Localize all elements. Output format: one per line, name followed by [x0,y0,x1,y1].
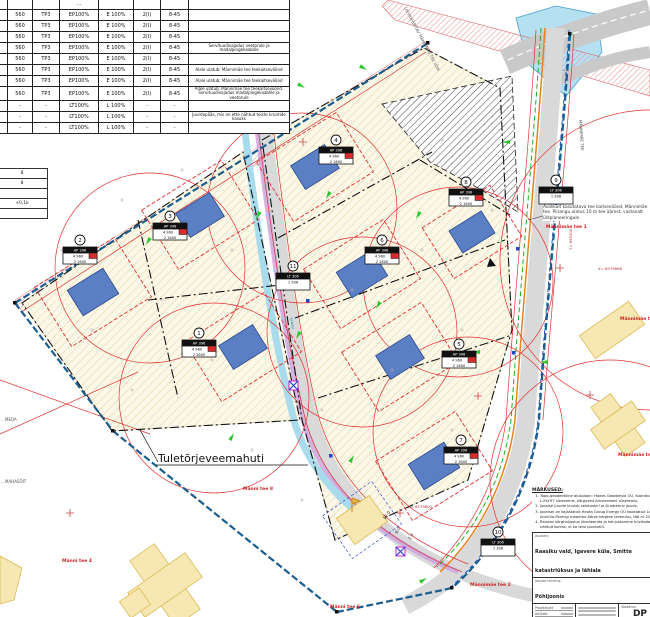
table-cell [189,101,290,112]
address-label-4: Männimäe tee 3 [620,316,650,322]
table-cell: E 100% [99,10,134,21]
legend-mini-table: 88+0,1k [0,168,48,219]
coord-x2: X= 6579600 [408,504,432,509]
table-cell: 560 [8,10,33,21]
table-cell: LT100% [60,101,99,112]
table-row: 560TP3EP100%E 100%2(I)8-45 [0,21,290,32]
table-cell: EP100% [60,32,99,43]
table-cell [189,21,290,32]
table-cell: EP100% [60,87,99,101]
title-block-roles: Projektijuht Arhitekt Koostaja [533,604,576,617]
coord-y1: Y= 659300 [568,228,573,250]
table-row: 560TP3EP100%E 100%2(I)8-45 [0,32,290,43]
table-cell: 2(I) [134,76,161,87]
svg-text:2 1600: 2 1600 [460,202,473,206]
note-item: Raiutav kõrghaljastus likvideerida ja ka… [540,520,650,529]
table-cell: 2(I) [134,32,161,43]
notes-heading: MÄRKUSED: [532,488,650,493]
table-row: 560TP3EP100%E 100%2(I)8-45Alale ulatub: … [0,76,290,87]
table-cell: Servituudivajadus veetorule ja madalping… [189,43,290,54]
left-edge-label-1: …MEDA [1,417,17,422]
table-cell [189,0,290,10]
table-cell: LT100% [60,112,99,123]
plot-block-west [22,152,300,431]
table-cell [0,209,48,219]
table-row: 560TP3EP100%E 100%2(I)8-45 [0,54,290,65]
tuletorje-label: Tuletõrjeveemahuti [157,452,264,465]
title-block-stage-date: Staadium DP Kuupäev 16.10.2013 [619,604,650,617]
table-cell [0,54,8,65]
table-cell: L 100% [99,112,134,123]
note-item: Joonise juurde kuulub seletuskiri ja ill… [540,504,650,509]
svg-text:1: 1 [197,331,201,337]
table-cell [0,0,8,10]
table-cell: 2(I) [134,65,161,76]
table-cell: EP100% [60,43,99,54]
table-cell: - [134,101,161,112]
table-cell [0,87,8,101]
table-cell [0,10,8,21]
name-placeholder [561,613,573,615]
table-cell: 2(I) [134,87,161,101]
table-row: 8 [0,169,48,179]
svg-text:4 960: 4 960 [329,155,340,159]
table-cell [8,0,33,10]
table-cell: E 100% [99,65,134,76]
title-block-company [576,604,619,617]
svg-text:AP 396: AP 396 [193,341,206,345]
svg-text:4 960: 4 960 [73,255,84,259]
table-row: 560TP3EP100%E 100%2(I)8-45Alale ulatub: … [0,87,290,101]
company-text-placeholder [578,614,616,616]
table-cell: TP3 [33,65,60,76]
table-row: --LT100%L 100%--Juurdepääs, mis on ette … [0,112,290,123]
table-cell: - [161,101,189,112]
table-cell: 8 [0,179,48,189]
table-row: 560TP3EP100%E 100%2(I)8-45Servituudivaja… [0,43,290,54]
table-cell: TP3 [33,87,60,101]
road-name-vertical: MÄNNIMÄE TEE [578,120,585,152]
road-protection-note: Avalikult kasutatava tee kaitsevöönd, Mä… [543,205,648,221]
table-cell: EP100% [60,65,99,76]
table-cell: TP3 [33,54,60,65]
svg-text:6: 6 [380,238,384,244]
table-cell: TP3 [33,10,60,21]
table-cell [99,0,134,10]
table-cell [0,101,8,112]
table-cell: E 100% [99,76,134,87]
svg-text:2 1600: 2 1600 [164,236,177,240]
table-cell: … [60,0,99,10]
table-cell [33,0,60,10]
svg-text:AP 396: AP 396 [455,448,468,452]
table-cell [0,112,8,123]
svg-text:8: 8 [464,180,468,186]
company-text-placeholder [578,607,616,609]
table-cell: TP3 [33,21,60,32]
svg-text:AP 396: AP 396 [460,190,473,194]
table-row [0,189,48,199]
table-cell [0,65,8,76]
table-cell: 560 [8,43,33,54]
table-cell: EP100% [60,21,99,32]
notes-list: Topo-geodeetiline alusplaan: Hades Geode… [532,494,650,529]
table-cell: EP100% [60,10,99,21]
svg-text:4 960: 4 960 [454,455,465,459]
note-item: Topo-geodeetiline alusplaan: Hades Geode… [540,494,650,503]
table-cell: 2(I) [134,21,161,32]
svg-text:2 1600: 2 1600 [193,353,206,357]
svg-text:4 960: 4 960 [192,348,203,352]
table-cell: 2(I) [134,43,161,54]
table-cell [0,123,8,134]
svg-text:LT 306: LT 306 [550,188,562,192]
svg-text:7: 7 [459,438,463,444]
svg-text:5: 5 [457,342,461,348]
drawing-value: Põhijoonis [535,594,564,600]
table-cell [0,76,8,87]
svg-text:2 1600: 2 1600 [74,260,87,264]
name-placeholder [561,607,573,609]
svg-text:2 1600: 2 1600 [453,364,466,368]
table-cell: 8-45 [161,10,189,21]
table-cell: Alale ulatub: Männimäe tee teekaitsevöön… [189,76,290,87]
svg-text:3: 3 [168,214,172,220]
svg-text:4 960: 4 960 [375,255,386,259]
plot-info-box-2: 2 AP 396 4 9602 1600 [63,235,97,264]
svg-text:LT 306: LT 306 [287,274,299,278]
address-label-6: Männi tee 6 [330,604,360,610]
table-cell [0,189,48,199]
svg-text:2 1600: 2 1600 [330,160,343,164]
svg-text:1 306: 1 306 [288,281,299,285]
table-cell [189,123,290,134]
table-cell [134,0,161,10]
table-cell: E 100% [99,87,134,101]
svg-text:4: 4 [334,138,338,144]
table-cell [189,32,290,43]
table-cell: TP3 [33,43,60,54]
svg-text:2 1600: 2 1600 [455,460,468,464]
table-row: … [0,0,290,10]
table-row: --LT100%L 100%-- [0,101,290,112]
note-item: Joonisel on kajastatud Hepta Group Energ… [540,510,650,519]
table-row: 560TP3EP100%E 100%2(I)8-45Alale ulatub: … [0,65,290,76]
svg-text:9: 9 [554,178,558,184]
svg-text:1 306: 1 306 [551,195,562,199]
drawing-label: Joonise nimetus: [535,579,650,583]
table-cell: - [161,112,189,123]
table-cell: - [8,101,33,112]
table-row: 8 [0,179,48,189]
table-cell: TP3 [33,32,60,43]
svg-text:4 960: 4 960 [163,231,174,235]
table-cell: EP100% [60,54,99,65]
table-cell: - [33,123,60,134]
sheet-corner: MÄRKUSED: Topo-geodeetiline alusplaan: H… [532,488,650,617]
table-cell: - [8,123,33,134]
table-cell: Alale ulatub: Männimäe tee teekaitsevöön… [189,87,290,101]
table-cell: L 100% [99,123,134,134]
table-cell: 2(I) [134,10,161,21]
table-cell: 2(I) [134,54,161,65]
table-cell: E 100% [99,54,134,65]
table-cell: E 100% [99,32,134,43]
table-cell: Juurdepääs, mis on ette nähtud teiste kr… [189,112,290,123]
tuletorje-leader [140,430,158,462]
location-label: Asukoht: [535,534,650,538]
table-cell [0,43,8,54]
address-label-5: Männimäe tee 5 [618,452,650,458]
table-cell [189,54,290,65]
detail-plan-sheet: 1 AP 396 4 9602 1600 2 AP 396 4 9602 160… [0,0,650,617]
role-row: Arhitekt [535,611,573,617]
table-cell: - [33,112,60,123]
table-cell [189,10,290,21]
table-cell: E 100% [99,43,134,54]
table-cell: LT100% [60,123,99,134]
title-block-drawing: Joonise nimetus: Põhijoonis [533,578,650,604]
table-cell: +0,1k [0,199,48,209]
table-cell: 8-45 [161,65,189,76]
svg-text:AP 396: AP 396 [330,148,343,152]
table-cell: - [134,112,161,123]
table-cell: 8-45 [161,54,189,65]
land-use-table: …560TP3EP100%E 100%2(I)8-45560TP3EP100%E… [0,0,290,134]
table-cell: 8-45 [161,21,189,32]
svg-text:AP 396: AP 396 [164,224,177,228]
table-cell: 560 [8,54,33,65]
table-cell: 8-45 [161,32,189,43]
table-cell: - [33,101,60,112]
table-cell: E 100% [99,21,134,32]
title-block: Asukoht: Raasiku vald, Igavere küla, Smi… [532,532,650,617]
svg-text:AP 396: AP 396 [453,352,466,356]
table-row: +0,1k [0,199,48,209]
table-cell: 8-45 [161,43,189,54]
title-block-location: Asukoht: Raasiku vald, Igavere küla, Smi… [533,533,650,578]
table-cell: - [8,112,33,123]
table-row [0,209,48,219]
company-text-placeholder [578,610,616,612]
table-cell: - [161,123,189,134]
svg-text:4 960: 4 960 [452,359,463,363]
table-cell: 560 [8,87,33,101]
svg-text:2: 2 [78,238,82,244]
stage-value: DP [621,609,650,617]
table-cell: 8-45 [161,87,189,101]
table-cell: 8-45 [161,76,189,87]
svg-text:4 960: 4 960 [459,197,470,201]
address-label-7: Männimäe tee 1 [546,224,587,230]
address-label-3: Männimäe tee 2 [470,582,511,588]
svg-text:LT 306: LT 306 [492,540,504,544]
table-cell: - [134,123,161,134]
title-block-grid: Projektijuht Arhitekt Koostaja Staadium … [533,604,650,617]
table-cell: Alale ulatub: Männimäe tee teekaitsevöön… [189,65,290,76]
table-cell: 560 [8,76,33,87]
table-cell: L 100% [99,101,134,112]
table-row: --LT100%L 100%-- [0,123,290,134]
table-cell [161,0,189,10]
svg-text:10: 10 [495,530,502,536]
table-cell: 560 [8,65,33,76]
coord-x1: X= 6579868 [598,266,622,271]
location-value: Raasiku vald, Igavere küla, Smitte katas… [535,549,632,574]
table-cell: 560 [8,32,33,43]
svg-text:1 306: 1 306 [493,547,504,551]
table-cell: EP100% [60,76,99,87]
table-cell [0,21,8,32]
svg-text:11: 11 [290,264,297,270]
table-row: 560TP3EP100%E 100%2(I)8-45 [0,10,290,21]
address-label-2: Männi tee 4 [62,558,92,564]
svg-text:AP 396: AP 396 [376,248,389,252]
table-cell: 560 [8,21,33,32]
address-label-1: Männi tee 8 [243,486,273,492]
table-cell: TP3 [33,76,60,87]
svg-text:AP 396: AP 396 [74,248,87,252]
table-cell [0,32,8,43]
table-cell: 8 [0,169,48,179]
left-edge-label-2: …MAHASÕIT [1,479,27,484]
svg-text:2 1600: 2 1600 [376,260,389,264]
